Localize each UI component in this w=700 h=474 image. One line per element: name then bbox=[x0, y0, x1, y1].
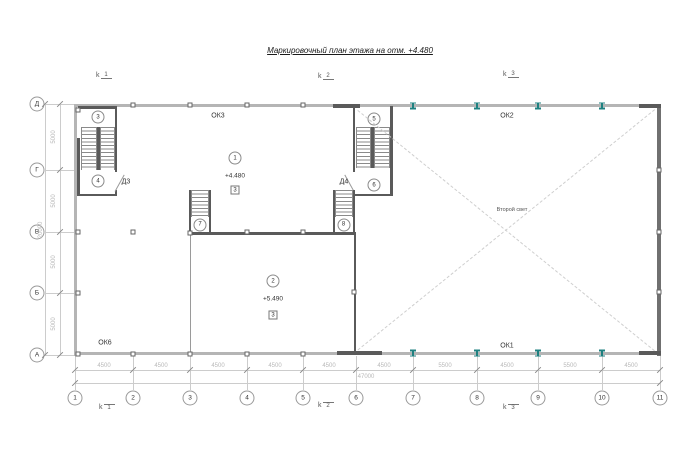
stair8-wall-right bbox=[353, 190, 355, 232]
column-marker-icon bbox=[131, 351, 136, 356]
axis-stub-col bbox=[356, 356, 357, 390]
section-mark-letter: k bbox=[503, 404, 507, 412]
callout-bubble: 6 bbox=[368, 179, 381, 192]
column-marker-icon bbox=[245, 230, 250, 235]
dim-label-bottom: 4500 bbox=[268, 363, 281, 369]
axis-bubble-row: Г bbox=[30, 163, 45, 178]
stair-flight-icon bbox=[191, 190, 209, 217]
wall-corner-bottom-right bbox=[639, 351, 661, 355]
column-marker-icon bbox=[76, 351, 81, 356]
dim-label-left: 5000 bbox=[51, 255, 57, 268]
section-mark-letter: k bbox=[96, 72, 100, 80]
stair-flight-icon bbox=[356, 127, 371, 168]
stairwell2-wall-left-upper bbox=[353, 106, 356, 172]
dim-label-bottom: 4500 bbox=[322, 363, 335, 369]
axis-stub-col bbox=[133, 356, 134, 390]
door-label-d4: Д4 bbox=[340, 179, 349, 186]
stair-flight-icon bbox=[81, 127, 97, 170]
axis-stub-col bbox=[660, 356, 661, 390]
window-label-ok6: ОК6 bbox=[98, 340, 111, 347]
section-mark-letter: k bbox=[318, 73, 322, 81]
left-dim-line-outer bbox=[45, 104, 46, 355]
stairwell1-wall-bottom bbox=[78, 194, 117, 197]
section-mark-3-bottom: k 3 bbox=[503, 404, 519, 412]
axis-bubble-col: 1 bbox=[68, 391, 83, 406]
column-marker-icon bbox=[352, 290, 357, 295]
axis-stub-col bbox=[602, 356, 603, 390]
section-mark-number: 2 bbox=[326, 403, 329, 409]
axis-bubble-row: А bbox=[30, 348, 45, 363]
second-light-label: Второй свет bbox=[497, 207, 528, 213]
steel-column-icon bbox=[410, 350, 416, 357]
dim-label-bottom: 5500 bbox=[438, 363, 451, 369]
axis-bubble-col: 10 bbox=[595, 391, 610, 406]
column-marker-icon bbox=[76, 108, 81, 113]
room2-wall-left bbox=[190, 233, 191, 353]
dim-label-bottom: 4500 bbox=[624, 363, 637, 369]
wall-corner-top-right bbox=[639, 104, 661, 108]
column-marker-icon bbox=[245, 351, 250, 356]
column-marker-icon bbox=[188, 231, 193, 236]
window-label-ok3: ОК3 bbox=[211, 113, 224, 120]
axis-bubble-col: 11 bbox=[653, 391, 668, 406]
axis-stub-col bbox=[190, 356, 191, 390]
window-label-ok1: ОК1 bbox=[500, 343, 513, 350]
dim-label-bottom: 4500 bbox=[211, 363, 224, 369]
callout-bubble: 4 bbox=[92, 175, 105, 188]
dim-label-bottom-total: 47000 bbox=[358, 374, 375, 380]
axis-stub-col bbox=[477, 356, 478, 390]
stairwell1-wall-left bbox=[77, 138, 80, 196]
floor-plan-drawing: Маркировочный план этажа на отм. +4.480 … bbox=[0, 0, 700, 474]
callout-bubble: 1 bbox=[229, 152, 242, 165]
steel-column-icon bbox=[474, 102, 480, 109]
steel-column-icon bbox=[599, 350, 605, 357]
wall-footing-axis6 bbox=[337, 351, 382, 356]
axis-stub-col bbox=[538, 356, 539, 390]
stair7-wall-right bbox=[209, 190, 211, 232]
axis-bubble-col: 8 bbox=[470, 391, 485, 406]
axis-bubble-col: 7 bbox=[406, 391, 421, 406]
callout-bubble: 2 bbox=[267, 275, 280, 288]
axis-bubble-col: 5 bbox=[296, 391, 311, 406]
axis-stub-col bbox=[247, 356, 248, 390]
section-mark-1-bottom: k 1 bbox=[99, 404, 115, 412]
dim-label-left-total: 20000 bbox=[38, 222, 44, 239]
column-marker-icon bbox=[131, 230, 136, 235]
callout-bubble: 7 bbox=[194, 218, 207, 231]
axis-bubble-col: 3 bbox=[183, 391, 198, 406]
dim-label-bottom: 4500 bbox=[154, 363, 167, 369]
steel-column-icon bbox=[410, 102, 416, 109]
column-marker-icon bbox=[301, 351, 306, 356]
steel-column-icon bbox=[474, 350, 480, 357]
section-mark-2-bottom: k 2 bbox=[318, 402, 334, 410]
section-mark-line bbox=[508, 77, 519, 78]
section-mark-1-top: k 1 bbox=[96, 72, 112, 80]
finish-mark: 3 bbox=[269, 311, 278, 320]
wall-top bbox=[75, 104, 661, 107]
column-marker-icon bbox=[657, 168, 662, 173]
page-title: Маркировочный план этажа на отм. +4.480 bbox=[0, 46, 700, 55]
column-marker-icon bbox=[301, 230, 306, 235]
finish-mark: 3 bbox=[231, 186, 240, 195]
column-marker-icon bbox=[131, 103, 136, 108]
column-marker-icon bbox=[76, 230, 81, 235]
column-marker-icon bbox=[76, 291, 81, 296]
steel-column-icon bbox=[599, 102, 605, 109]
column-marker-icon bbox=[657, 290, 662, 295]
axis-bubble-col: 9 bbox=[531, 391, 546, 406]
dim-label-bottom: 5500 bbox=[563, 363, 576, 369]
dim-label-bottom: 4500 bbox=[377, 363, 390, 369]
section-mark-number: 3 bbox=[511, 405, 514, 411]
axis-stub-col bbox=[303, 356, 304, 390]
stair-flight-icon bbox=[100, 127, 116, 170]
stairwell1-wall-top bbox=[78, 106, 117, 109]
section-mark-2-top: k 2 bbox=[318, 73, 334, 81]
bottom-dim-line-inner bbox=[75, 370, 661, 371]
dim-label-bottom: 4500 bbox=[500, 363, 513, 369]
section-mark-letter: k bbox=[503, 71, 507, 79]
steel-column-icon bbox=[535, 350, 541, 357]
stairwell2-wall-right bbox=[390, 106, 393, 196]
callout-bubble: 8 bbox=[337, 218, 350, 231]
dim-label-left: 5000 bbox=[51, 194, 57, 207]
dim-label-bottom: 4500 bbox=[97, 363, 110, 369]
steel-column-icon bbox=[535, 102, 541, 109]
axis-bubble-row: Б bbox=[30, 286, 45, 301]
axis-stub-col bbox=[413, 356, 414, 390]
elevation-mark: +4.480 bbox=[225, 173, 245, 180]
column-marker-icon bbox=[657, 230, 662, 235]
column-marker-icon bbox=[301, 103, 306, 108]
door-label-d3: Д3 bbox=[122, 179, 131, 186]
dim-label-left: 5000 bbox=[51, 130, 57, 143]
section-mark-number: 1 bbox=[107, 405, 110, 411]
stairwell2-wall-bottom bbox=[353, 194, 393, 197]
section-mark-line bbox=[101, 78, 112, 79]
column-marker-icon bbox=[188, 103, 193, 108]
column-marker-icon bbox=[245, 103, 250, 108]
axis-bubble-col: 2 bbox=[126, 391, 141, 406]
section-mark-3-top: k 3 bbox=[503, 71, 519, 79]
stairwell1-divider bbox=[97, 127, 100, 170]
wall-stair2-top bbox=[333, 104, 360, 108]
section-mark-line bbox=[323, 79, 334, 80]
axis-bubble-col: 6 bbox=[349, 391, 364, 406]
column-marker-icon bbox=[188, 351, 193, 356]
axis-stub-col bbox=[75, 356, 76, 390]
window-label-ok2: ОК2 bbox=[500, 113, 513, 120]
bottom-dim-line-outer bbox=[75, 383, 661, 384]
section-mark-letter: k bbox=[99, 404, 103, 412]
section-mark-letter: k bbox=[318, 402, 322, 410]
stairwell2-divider bbox=[371, 127, 374, 168]
axis-bubble-col: 4 bbox=[240, 391, 255, 406]
stair-flight-icon bbox=[335, 190, 353, 217]
dim-label-left: 5000 bbox=[51, 317, 57, 330]
elevation-mark: +5.490 bbox=[263, 296, 283, 303]
wall-middle bbox=[189, 232, 356, 235]
callout-bubble: 3 bbox=[92, 111, 105, 124]
axis-bubble-row: Д bbox=[30, 97, 45, 112]
